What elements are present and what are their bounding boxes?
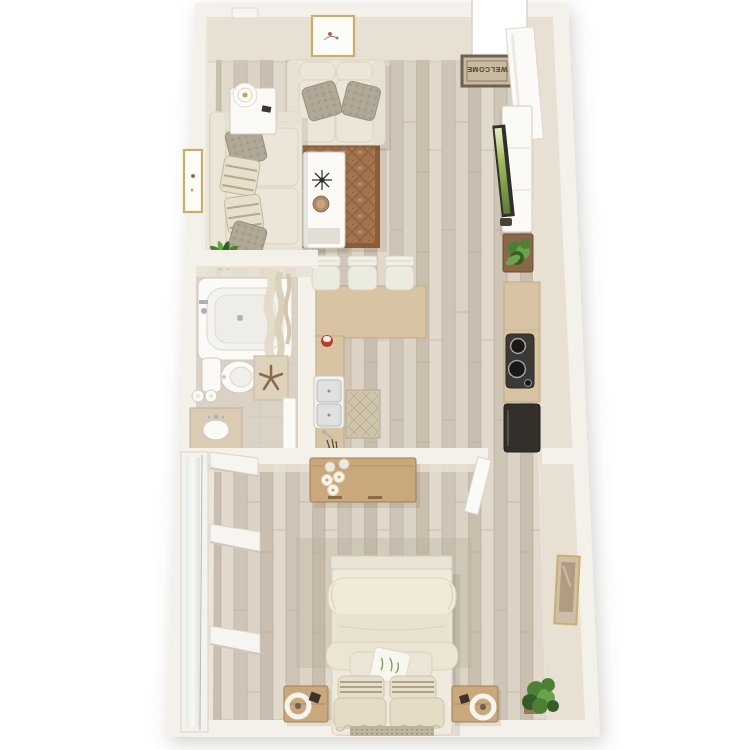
- cake-stand: [321, 335, 333, 347]
- sofa: [210, 112, 302, 262]
- refrigerator: [504, 404, 540, 452]
- burner: [509, 361, 526, 378]
- vanity: [190, 408, 242, 450]
- footboard: [331, 556, 452, 569]
- bar-stool: [385, 256, 414, 290]
- table-lamp: [233, 83, 257, 107]
- burner: [525, 380, 532, 387]
- wall-art-left: [184, 150, 202, 212]
- ceiling-vent: [232, 8, 258, 18]
- bath-mat: [254, 356, 288, 400]
- closet-sliding-door: [181, 452, 208, 732]
- cooktop: [506, 334, 534, 388]
- welcome-mat: WELCOME: [462, 56, 512, 86]
- side-table: [230, 83, 276, 134]
- bed: [326, 556, 458, 736]
- floorplan-image: WELCOME: [0, 0, 750, 750]
- kitchen-mat: [346, 390, 380, 438]
- drawer-handle: [368, 496, 382, 499]
- divider-wall: [542, 448, 574, 464]
- wall-art-top: [312, 16, 354, 56]
- coffee-table: [303, 152, 345, 248]
- bathroom-wall: [190, 250, 318, 268]
- vanity-sink: [203, 420, 229, 440]
- media-box: [500, 218, 512, 226]
- floorplan-svg: WELCOME: [0, 0, 750, 750]
- table-decor-tray: [313, 196, 329, 212]
- nightstand-left: [284, 686, 331, 726]
- bed-pillow-striped: [338, 676, 384, 700]
- vanity-faucet: [214, 415, 218, 419]
- table-decor-sculpture: [312, 170, 332, 190]
- console-table: [310, 458, 416, 502]
- decor-jar: [339, 459, 349, 469]
- toilet: [202, 358, 257, 393]
- welcome-mat-text: WELCOME: [467, 66, 508, 73]
- bathroom-door: [283, 398, 296, 452]
- planter-box: [503, 234, 533, 272]
- peninsula-counter: [316, 286, 426, 338]
- burner: [511, 339, 526, 354]
- throw-pillow: [219, 155, 261, 197]
- decor-jar: [325, 462, 335, 472]
- nightstand-right: [452, 686, 501, 726]
- tub-drain: [237, 315, 243, 321]
- wall-art-bedroom: [554, 555, 580, 624]
- drawer-handle: [328, 496, 342, 499]
- bed-pillow-striped: [390, 676, 436, 700]
- headboard: [350, 726, 434, 736]
- bar-stool: [348, 256, 377, 290]
